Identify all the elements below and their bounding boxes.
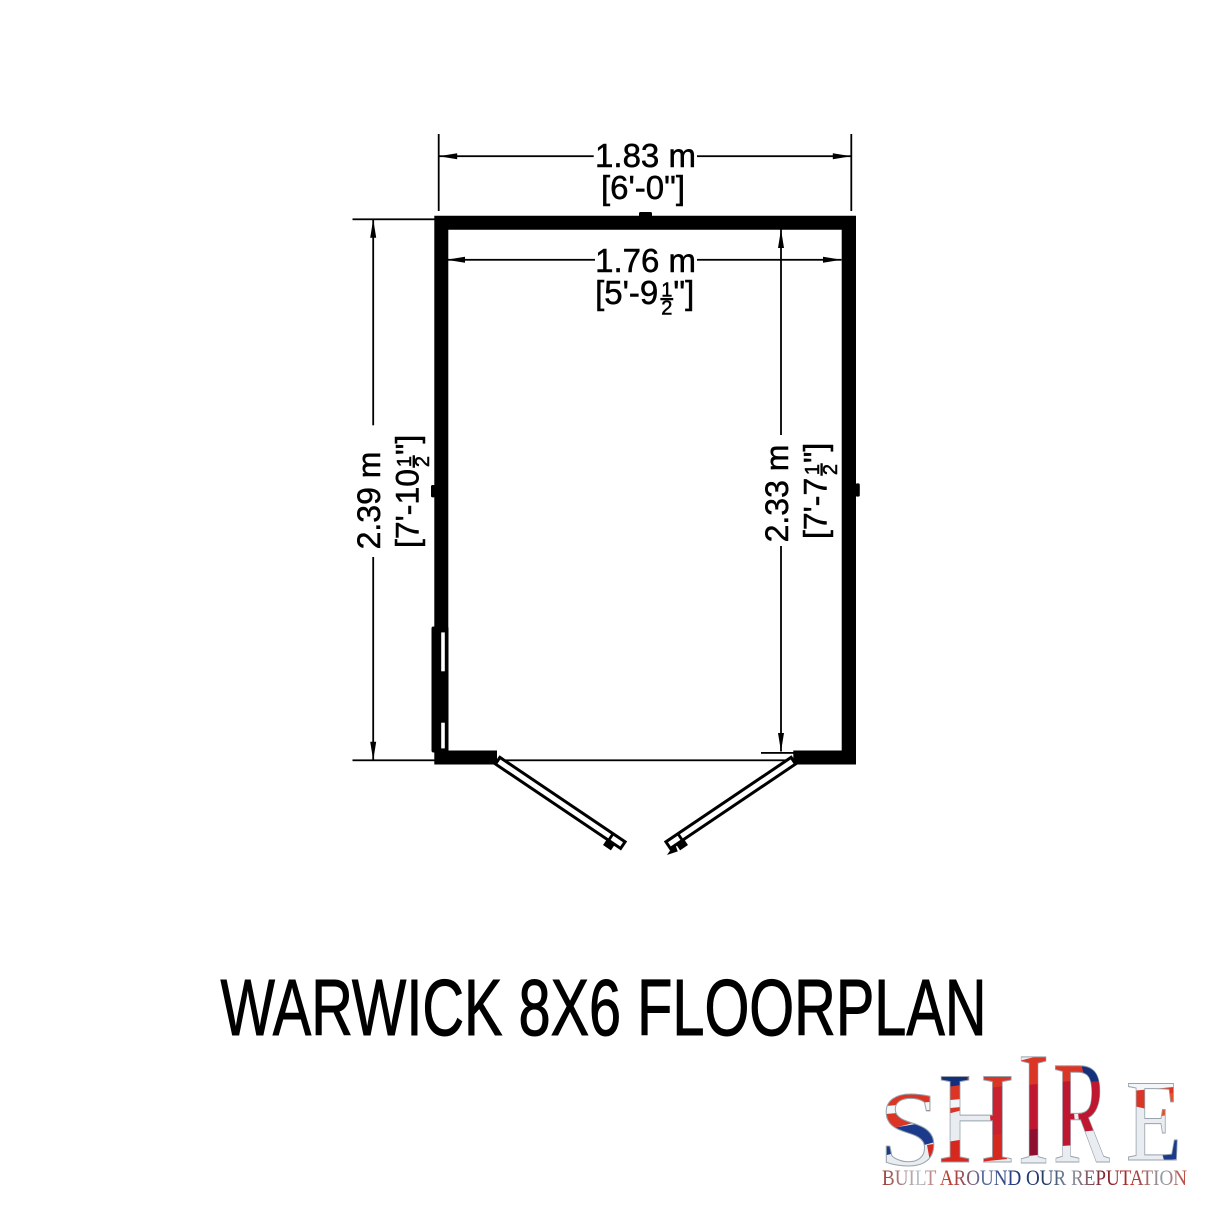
svg-text:2: 2 bbox=[820, 464, 842, 475]
svg-text:2: 2 bbox=[661, 298, 672, 320]
svg-text:"]: "] bbox=[390, 435, 426, 455]
svg-text:BUILT AROUND OUR REPUTATION: BUILT AROUND OUR REPUTATION bbox=[882, 1165, 1187, 1190]
svg-text:[7'-7: [7'-7 bbox=[798, 478, 834, 539]
svg-text:"]: "] bbox=[798, 443, 834, 463]
svg-text:"]: "] bbox=[673, 274, 694, 311]
svg-text:[5'-9: [5'-9 bbox=[595, 274, 658, 311]
svg-text:WARWICK 8X6 FLOORPLAN: WARWICK 8X6 FLOORPLAN bbox=[221, 963, 987, 1052]
svg-text:[7'-10: [7'-10 bbox=[390, 469, 426, 548]
svg-text:2.33 m: 2.33 m bbox=[759, 445, 795, 543]
svg-text:2: 2 bbox=[412, 456, 434, 467]
svg-text:2.39 m: 2.39 m bbox=[351, 452, 387, 550]
svg-text:[6'-0"]: [6'-0"] bbox=[601, 169, 685, 206]
